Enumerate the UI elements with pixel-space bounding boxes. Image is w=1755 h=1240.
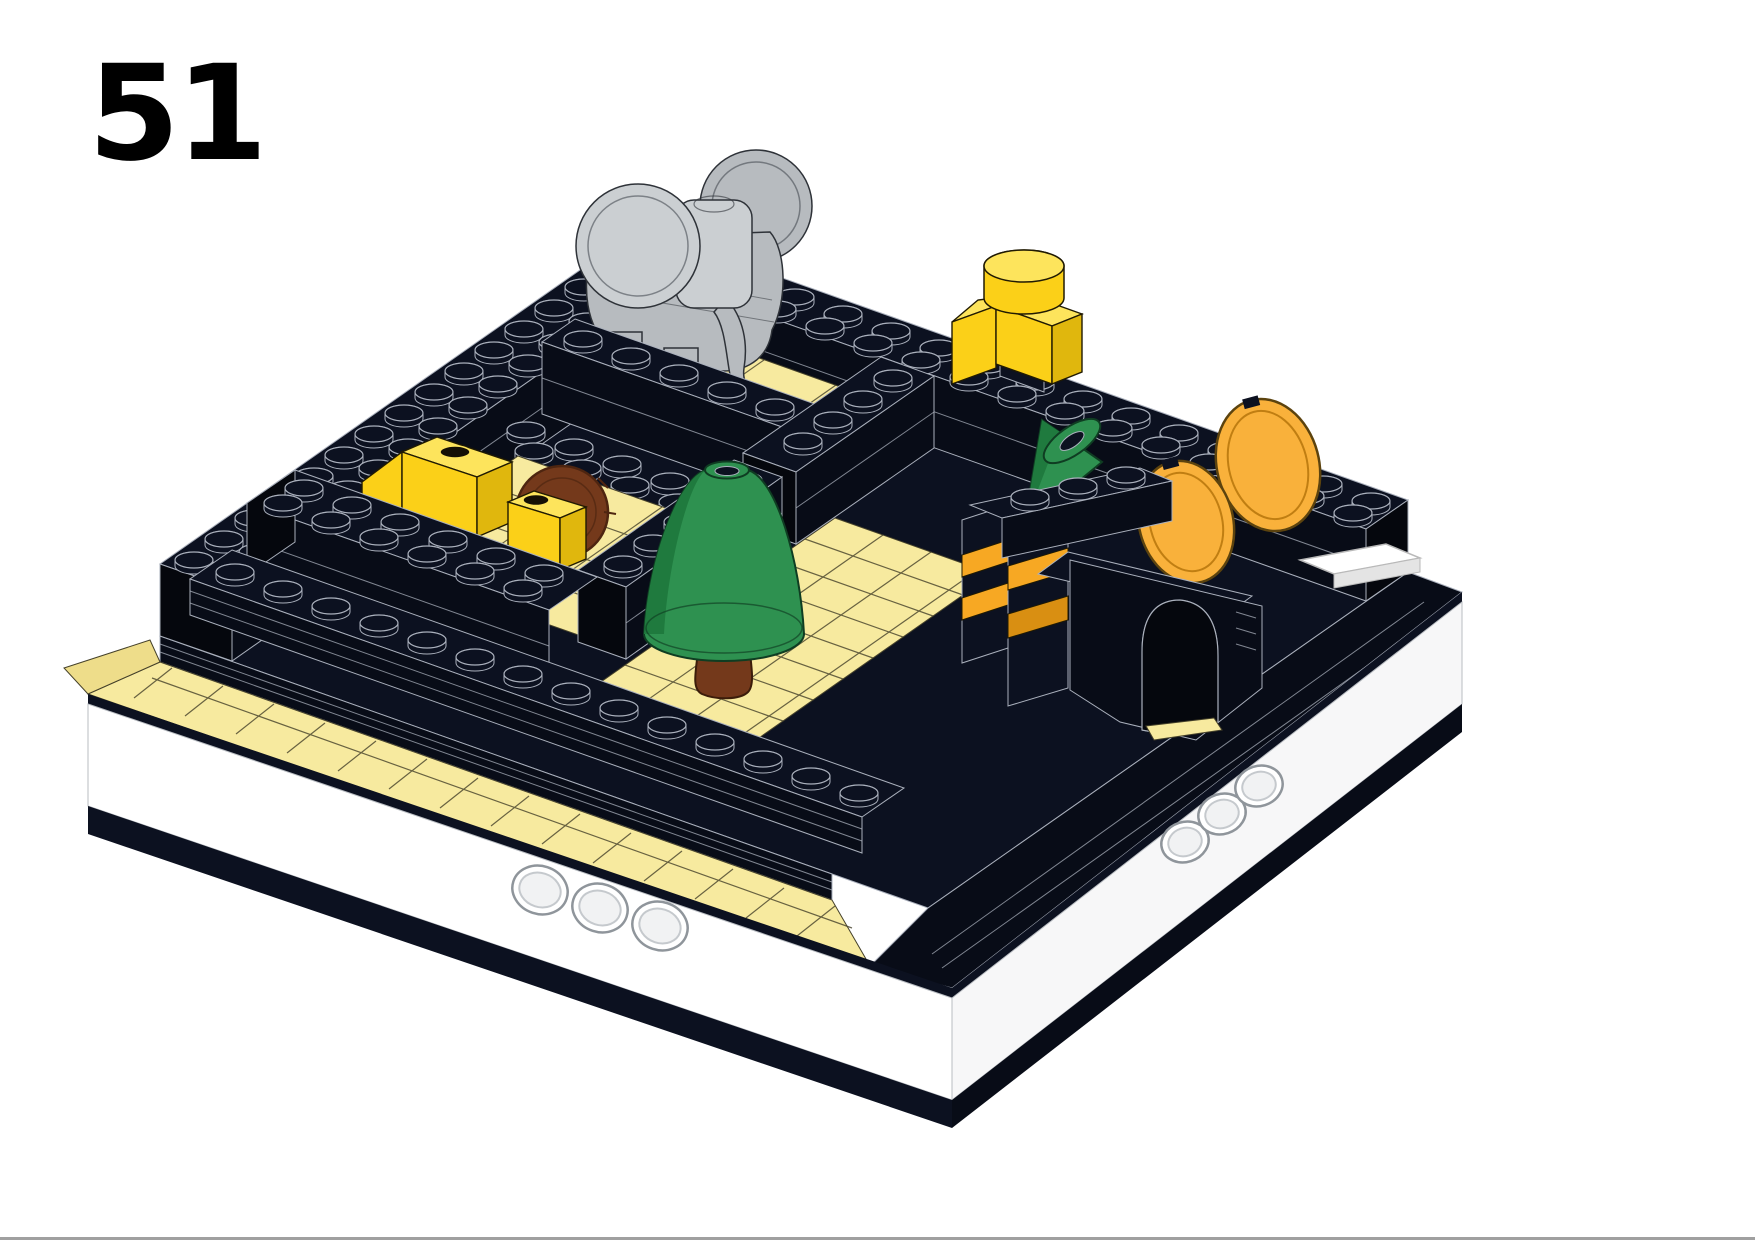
elephant-front-ear (576, 184, 700, 308)
figure-head-stud (984, 250, 1064, 282)
yellow-head-figure (952, 250, 1082, 392)
instruction-page: 51 (0, 0, 1755, 1240)
lego-model-illustration (0, 0, 1755, 1240)
